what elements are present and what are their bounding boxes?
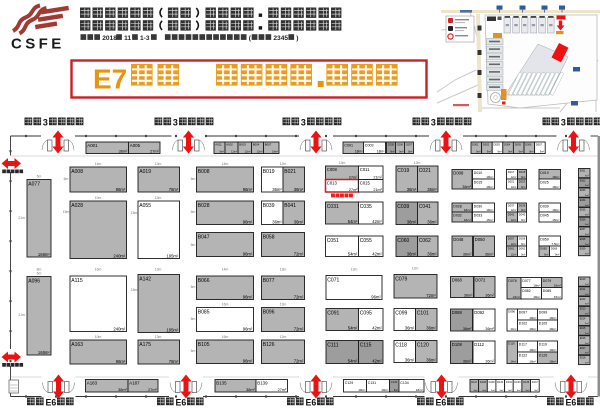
svg-text:D032: D032 <box>453 213 461 217</box>
svg-text:9m²: 9m² <box>540 150 544 153</box>
svg-text:36m²: 36m² <box>462 185 471 189</box>
svg-text:10m: 10m <box>95 196 102 200</box>
svg-text:36m²: 36m² <box>294 219 304 224</box>
svg-text:42m²: 42m² <box>372 251 382 256</box>
svg-text:B041: B041 <box>284 203 296 209</box>
svg-text:E016: E016 <box>580 337 586 340</box>
svg-text:C006: C006 <box>397 142 404 146</box>
svg-text:9m²: 9m² <box>585 194 589 197</box>
svg-text:18m²: 18m² <box>464 208 471 212</box>
svg-text:36m²: 36m² <box>272 187 282 192</box>
svg-text:13m: 13m <box>155 268 162 272</box>
svg-text:E7: E7 <box>93 64 127 95</box>
svg-text:C134: C134 <box>400 381 408 385</box>
svg-text:240m²: 240m² <box>113 326 125 331</box>
svg-text:18m²: 18m² <box>549 359 556 363</box>
svg-text:A011: A011 <box>215 143 222 147</box>
svg-text:E011: E011 <box>580 288 586 291</box>
svg-text:15m²: 15m² <box>552 218 559 222</box>
svg-text:9m²: 9m² <box>529 150 533 153</box>
svg-text:36m²: 36m² <box>407 187 417 192</box>
svg-text:9m²: 9m² <box>585 342 589 345</box>
svg-text:D108: D108 <box>452 342 463 347</box>
svg-text:A175: A175 <box>139 342 151 348</box>
svg-text:D059: D059 <box>540 237 548 241</box>
svg-text:18m²: 18m² <box>554 283 561 287</box>
svg-text:D036: D036 <box>519 204 526 208</box>
svg-text:C129: C129 <box>345 381 353 385</box>
svg-text:9m²: 9m² <box>585 352 589 355</box>
svg-text:18m²: 18m² <box>529 316 536 320</box>
svg-text:12m²: 12m² <box>511 253 517 256</box>
svg-text:B008: B008 <box>198 169 210 175</box>
svg-text:D030: D030 <box>474 204 482 208</box>
svg-text:72m²: 72m² <box>294 326 304 331</box>
svg-text:9m²: 9m² <box>555 253 559 256</box>
svg-text:9m²: 9m² <box>585 175 589 178</box>
svg-text:E007: E007 <box>580 228 586 231</box>
svg-text:D126: D126 <box>539 353 547 357</box>
svg-text:13m: 13m <box>280 303 287 307</box>
svg-text:13m: 13m <box>280 268 287 272</box>
svg-text:C099: C099 <box>395 310 407 316</box>
svg-text:B077: B077 <box>263 278 275 284</box>
svg-text:D039: D039 <box>540 204 548 208</box>
svg-text:C062: C062 <box>419 238 431 244</box>
svg-text:D122: D122 <box>519 353 527 357</box>
svg-text:E6: E6 <box>306 398 317 408</box>
svg-text:B004: B004 <box>253 143 260 147</box>
svg-text:13m: 13m <box>155 196 162 200</box>
svg-text:E008: E008 <box>580 238 586 241</box>
svg-text:D135: D135 <box>523 381 530 384</box>
svg-text:9m²: 9m² <box>585 184 589 187</box>
svg-text:C095: C095 <box>360 310 372 316</box>
svg-text:C133: C133 <box>391 380 398 384</box>
svg-text:10m: 10m <box>95 335 102 339</box>
svg-text:36m²: 36m² <box>405 357 415 362</box>
svg-text:D116: D116 <box>508 342 515 346</box>
svg-text:D006: D006 <box>525 142 532 146</box>
svg-text:168m²: 168m² <box>38 350 50 355</box>
svg-text:13m: 13m <box>155 335 162 339</box>
svg-text:96m²: 96m² <box>116 187 126 192</box>
svg-text:D082: D082 <box>522 289 530 293</box>
svg-text:54m²: 54m² <box>348 251 358 256</box>
svg-text:B096: B096 <box>263 309 275 315</box>
svg-text:D021: D021 <box>508 180 515 184</box>
svg-text:9m²: 9m² <box>585 293 589 296</box>
svg-text:12m²: 12m² <box>511 186 517 189</box>
svg-text:9m²: 9m² <box>408 150 412 153</box>
svg-text:D137: D137 <box>532 381 539 384</box>
svg-text:E005: E005 <box>580 209 586 212</box>
svg-text:9m²: 9m² <box>219 150 223 153</box>
svg-text:15m: 15m <box>131 288 138 292</box>
svg-text:D008: D008 <box>453 171 464 176</box>
svg-text:36m²: 36m² <box>485 327 494 331</box>
svg-text:B105: B105 <box>198 342 210 348</box>
svg-text:D085: D085 <box>543 289 551 293</box>
svg-text:96m²: 96m² <box>243 219 253 224</box>
svg-text:D079: D079 <box>543 279 551 283</box>
svg-text:18m²: 18m² <box>377 149 385 153</box>
svg-text:E6: E6 <box>46 398 57 408</box>
svg-text:9m²: 9m² <box>519 150 523 153</box>
svg-text:B003: B003 <box>239 143 246 147</box>
svg-text:C015: C015 <box>360 181 371 186</box>
svg-text:36m²: 36m² <box>426 357 436 362</box>
svg-text:D099: D099 <box>539 310 547 314</box>
svg-text:15m: 15m <box>63 210 70 214</box>
svg-text:24m²: 24m² <box>511 360 517 363</box>
svg-text:36m²: 36m² <box>464 293 473 297</box>
svg-text:1-3: 1-3 <box>140 35 150 42</box>
svg-text:9m²: 9m² <box>476 150 480 153</box>
svg-text:6m: 6m <box>191 243 196 247</box>
svg-text:D057: D057 <box>508 237 515 241</box>
svg-text:C055: C055 <box>360 238 372 244</box>
svg-text:B007: B007 <box>265 143 272 147</box>
svg-text:72m²: 72m² <box>294 294 304 299</box>
svg-text:18m²: 18m² <box>549 348 556 352</box>
svg-text:C041: C041 <box>419 204 431 210</box>
svg-text:18m²: 18m² <box>529 359 536 363</box>
svg-text:D066: D066 <box>551 247 558 251</box>
svg-text:E010: E010 <box>580 278 586 281</box>
svg-text:E6: E6 <box>566 398 577 408</box>
svg-text:D128: D128 <box>480 381 487 384</box>
svg-text:16m: 16m <box>222 303 229 307</box>
svg-text:18m²: 18m² <box>464 218 471 222</box>
svg-text:9m²: 9m² <box>487 150 491 153</box>
svg-text:E002: E002 <box>580 180 586 183</box>
svg-text:B028: B028 <box>198 203 210 209</box>
svg-text:36m²: 36m² <box>463 327 472 331</box>
svg-text:D041: D041 <box>508 213 515 217</box>
svg-text:D117: D117 <box>519 342 527 346</box>
svg-text:D018: D018 <box>519 170 526 174</box>
svg-text:D004: D004 <box>504 142 511 146</box>
svg-text:15m²: 15m² <box>486 218 493 222</box>
svg-text:E001: E001 <box>580 170 586 173</box>
svg-text:D072: D072 <box>475 278 486 283</box>
svg-text:A055: A055 <box>139 203 151 209</box>
svg-text:12m: 12m <box>280 162 287 166</box>
svg-text:C131: C131 <box>368 381 376 385</box>
svg-text:9m²: 9m² <box>585 223 589 226</box>
svg-text:C115: C115 <box>360 342 372 348</box>
svg-text:E015: E015 <box>580 327 586 330</box>
svg-text:14m: 14m <box>95 162 102 166</box>
svg-text:13m: 13m <box>339 161 346 165</box>
svg-text:D092: D092 <box>474 310 485 315</box>
svg-text:9m²: 9m² <box>585 253 589 256</box>
svg-text:3: 3 <box>431 118 436 128</box>
svg-text:27m²: 27m² <box>349 188 358 192</box>
svg-text:36m²: 36m² <box>119 149 128 153</box>
svg-text:A019: A019 <box>139 169 151 175</box>
svg-text:15m: 15m <box>131 211 138 215</box>
svg-text:7.5m²: 7.5m² <box>551 242 559 246</box>
svg-text:D127: D127 <box>471 381 478 384</box>
svg-text:36m²: 36m² <box>463 252 472 256</box>
svg-text:E009: E009 <box>580 248 586 251</box>
svg-text:78m²: 78m² <box>169 359 179 364</box>
svg-text:42m²: 42m² <box>372 219 382 224</box>
svg-text:C001: C001 <box>344 144 353 148</box>
svg-text:C011: C011 <box>360 167 370 172</box>
svg-text:E6: E6 <box>436 398 447 408</box>
svg-text:9m²: 9m² <box>521 243 525 246</box>
svg-text:9m²: 9m² <box>585 204 589 207</box>
svg-text:B019: B019 <box>263 169 275 175</box>
svg-text:C060: C060 <box>397 238 409 244</box>
svg-text:240m²: 240m² <box>113 253 125 258</box>
svg-text:D102: D102 <box>519 321 527 325</box>
svg-text:D097: D097 <box>519 310 527 314</box>
svg-text:21m: 21m <box>18 216 25 220</box>
svg-text:96m²: 96m² <box>371 294 381 299</box>
svg-text:96m²: 96m² <box>243 251 253 256</box>
svg-text:D003: D003 <box>494 142 501 146</box>
svg-text:C008: C008 <box>327 167 338 172</box>
svg-text:9m²: 9m² <box>508 389 512 392</box>
svg-text:A008: A008 <box>71 169 83 175</box>
svg-text:42m²: 42m² <box>372 325 382 330</box>
svg-text:36m²: 36m² <box>407 219 417 224</box>
svg-text:9m²: 9m² <box>517 389 521 392</box>
svg-text:13m: 13m <box>351 267 358 271</box>
svg-text:9m²: 9m² <box>585 322 589 325</box>
svg-text:9m²: 9m² <box>534 389 538 392</box>
svg-text:12m²: 12m² <box>231 150 237 153</box>
svg-text:): ) <box>296 35 298 42</box>
svg-text:A142: A142 <box>139 276 151 282</box>
svg-text:9m²: 9m² <box>390 150 394 153</box>
svg-text:96m²: 96m² <box>243 326 253 331</box>
svg-text:18m²: 18m² <box>552 185 559 189</box>
svg-text:C019: C019 <box>397 168 409 174</box>
svg-text:D048: D048 <box>453 237 464 242</box>
svg-text:11: 11 <box>124 35 131 42</box>
svg-text:18m²: 18m² <box>486 185 493 189</box>
svg-text:54m²: 54m² <box>348 325 358 330</box>
svg-text:24m²: 24m² <box>511 328 517 331</box>
svg-text:6m: 6m <box>191 177 196 181</box>
svg-text:6m: 6m <box>191 349 196 353</box>
svg-text:E017: E017 <box>580 347 586 350</box>
svg-text:C039: C039 <box>397 204 409 210</box>
svg-text:D133: D133 <box>515 381 522 384</box>
svg-text:A077: A077 <box>28 181 40 187</box>
svg-text:9m²: 9m² <box>521 176 525 179</box>
svg-text:96m²: 96m² <box>116 359 126 364</box>
svg-text:18m²: 18m² <box>549 327 556 331</box>
svg-text:18m²: 18m² <box>486 208 493 212</box>
svg-text:9m²: 9m² <box>585 283 589 286</box>
svg-text:C118: C118 <box>395 342 407 348</box>
svg-text:195m²: 195m² <box>166 327 178 332</box>
svg-text:36m²: 36m² <box>118 388 127 392</box>
svg-text:D112: D112 <box>474 342 484 347</box>
svg-text:9m²: 9m² <box>521 209 525 212</box>
svg-text:36m²: 36m² <box>426 325 436 330</box>
svg-text:14m: 14m <box>222 268 229 272</box>
svg-text:18m²: 18m² <box>272 150 278 153</box>
svg-text:36m²: 36m² <box>485 293 494 297</box>
svg-text:42m²: 42m² <box>372 358 382 363</box>
svg-text:78m²: 78m² <box>169 187 179 192</box>
svg-text:D096: D096 <box>508 310 515 314</box>
svg-text:36m²: 36m² <box>485 359 494 363</box>
svg-text:C021: C021 <box>419 168 431 174</box>
svg-text:D076: D076 <box>508 279 516 283</box>
svg-text:72m²: 72m² <box>294 251 304 256</box>
svg-text:D130: D130 <box>497 381 504 384</box>
svg-text:B066: B066 <box>198 278 210 284</box>
svg-text:18m²: 18m² <box>358 388 365 392</box>
svg-text:36m²: 36m² <box>407 251 417 256</box>
svg-text:B085: B085 <box>198 309 210 315</box>
svg-text:D010: D010 <box>474 171 482 175</box>
svg-text:D058: D058 <box>519 237 526 241</box>
svg-text:B047: B047 <box>198 234 210 240</box>
svg-text:168m²: 168m² <box>38 252 50 257</box>
svg-text:E006: E006 <box>580 219 586 222</box>
svg-text:E6: E6 <box>176 398 187 408</box>
svg-text:D043: D043 <box>519 213 526 217</box>
svg-text:9m²: 9m² <box>474 389 478 392</box>
svg-text:12m²: 12m² <box>511 209 517 212</box>
svg-text:18m²: 18m² <box>533 295 540 299</box>
svg-text:B021: B021 <box>284 169 296 175</box>
svg-text:24m²: 24m² <box>513 295 520 299</box>
svg-text:B126: B126 <box>263 342 275 348</box>
svg-text:27m²: 27m² <box>148 388 157 392</box>
svg-text:36m²: 36m² <box>485 252 494 256</box>
svg-text:A002: A002 <box>226 143 233 147</box>
svg-text:6m: 6m <box>37 271 42 275</box>
svg-text:36m²: 36m² <box>272 219 282 224</box>
svg-text:D119: D119 <box>539 342 547 346</box>
svg-text:A187: A187 <box>129 381 140 386</box>
svg-text:E014: E014 <box>580 317 586 320</box>
svg-text:9m²: 9m² <box>482 389 486 392</box>
svg-text:D017: D017 <box>508 170 515 174</box>
svg-text:D005: D005 <box>515 142 522 146</box>
svg-text:D088: D088 <box>452 310 463 315</box>
svg-text:9m²: 9m² <box>521 186 525 189</box>
svg-text:6m: 6m <box>191 317 196 321</box>
svg-text:36m²: 36m² <box>427 251 437 256</box>
svg-text:CSFE: CSFE <box>11 36 65 53</box>
svg-text:15m²: 15m² <box>554 295 561 299</box>
svg-text:B058: B058 <box>263 234 275 240</box>
svg-text:D025: D025 <box>540 180 548 184</box>
svg-text:36m²: 36m² <box>427 219 437 224</box>
svg-text:9m²: 9m² <box>585 361 589 364</box>
svg-text:12m²: 12m² <box>245 150 251 153</box>
svg-text:9m²: 9m² <box>526 389 530 392</box>
svg-text:D001: D001 <box>472 142 479 146</box>
svg-text:96m²: 96m² <box>243 358 253 363</box>
svg-text:18m²: 18m² <box>529 348 536 352</box>
svg-text:D023: D023 <box>519 180 526 184</box>
svg-text:12m²: 12m² <box>511 219 517 222</box>
svg-text:D007: D007 <box>536 142 543 146</box>
svg-text:6m: 6m <box>191 210 196 214</box>
svg-text:9m²: 9m² <box>585 243 589 246</box>
svg-text:8m: 8m <box>37 268 42 272</box>
svg-text:C003: C003 <box>365 144 374 148</box>
svg-text:36m²: 36m² <box>405 325 415 330</box>
svg-text:E004: E004 <box>580 199 586 202</box>
svg-text:A115: A115 <box>71 278 83 284</box>
svg-text:54m²: 54m² <box>348 358 358 363</box>
svg-text:36m²: 36m² <box>463 359 472 363</box>
svg-text:C035: C035 <box>360 204 372 210</box>
svg-text:18m²: 18m² <box>381 388 388 392</box>
svg-text:B135: B135 <box>216 381 227 386</box>
svg-text:16m: 16m <box>95 268 102 272</box>
svg-text:12m: 12m <box>414 161 421 165</box>
svg-text:E013: E013 <box>580 308 586 311</box>
svg-text:9m²: 9m² <box>399 150 403 153</box>
svg-text:27m²: 27m² <box>349 175 358 179</box>
svg-text:D131: D131 <box>506 381 513 384</box>
svg-text:21m: 21m <box>18 313 25 317</box>
svg-text:C071: C071 <box>327 277 339 283</box>
svg-text:9m²: 9m² <box>394 389 398 392</box>
svg-text:3: 3 <box>301 118 306 128</box>
svg-text:3: 3 <box>173 118 178 128</box>
svg-text:9m²: 9m² <box>585 214 589 217</box>
svg-text:D028: D028 <box>453 204 461 208</box>
svg-text:9m²: 9m² <box>585 332 589 335</box>
svg-text:12m: 12m <box>280 335 287 339</box>
svg-text:6m: 6m <box>37 174 42 178</box>
svg-text:E012: E012 <box>580 298 586 301</box>
svg-text:E018: E018 <box>580 357 586 360</box>
svg-text:36m²: 36m² <box>294 187 304 192</box>
svg-text:2345: 2345 <box>273 35 288 42</box>
svg-text:B139: B139 <box>257 381 268 386</box>
svg-text:D065: D065 <box>540 247 547 251</box>
svg-text:9m²: 9m² <box>521 253 525 256</box>
svg-text:18m²: 18m² <box>355 149 363 153</box>
svg-text:72m²: 72m² <box>426 293 436 298</box>
svg-text:D045: D045 <box>540 213 548 217</box>
svg-text:18m²: 18m² <box>552 208 559 212</box>
svg-text:18m²: 18m² <box>549 316 556 320</box>
svg-text:D077: D077 <box>522 279 530 283</box>
svg-text:36m²: 36m² <box>427 187 437 192</box>
svg-text:13m: 13m <box>155 162 162 166</box>
svg-text:18m²: 18m² <box>416 388 423 392</box>
svg-text:18m²: 18m² <box>552 175 559 179</box>
svg-text:D105: D105 <box>539 321 547 325</box>
svg-text:D068: D068 <box>452 278 463 283</box>
svg-text:A001: A001 <box>87 143 98 148</box>
svg-text:C051: C051 <box>327 238 339 244</box>
svg-text:6m: 6m <box>64 177 69 181</box>
svg-text:C031: C031 <box>327 204 339 210</box>
svg-text:18m²: 18m² <box>529 327 536 331</box>
svg-text:6m: 6m <box>191 285 196 289</box>
svg-text:D061: D061 <box>508 247 515 251</box>
svg-text:A005: A005 <box>130 143 141 148</box>
